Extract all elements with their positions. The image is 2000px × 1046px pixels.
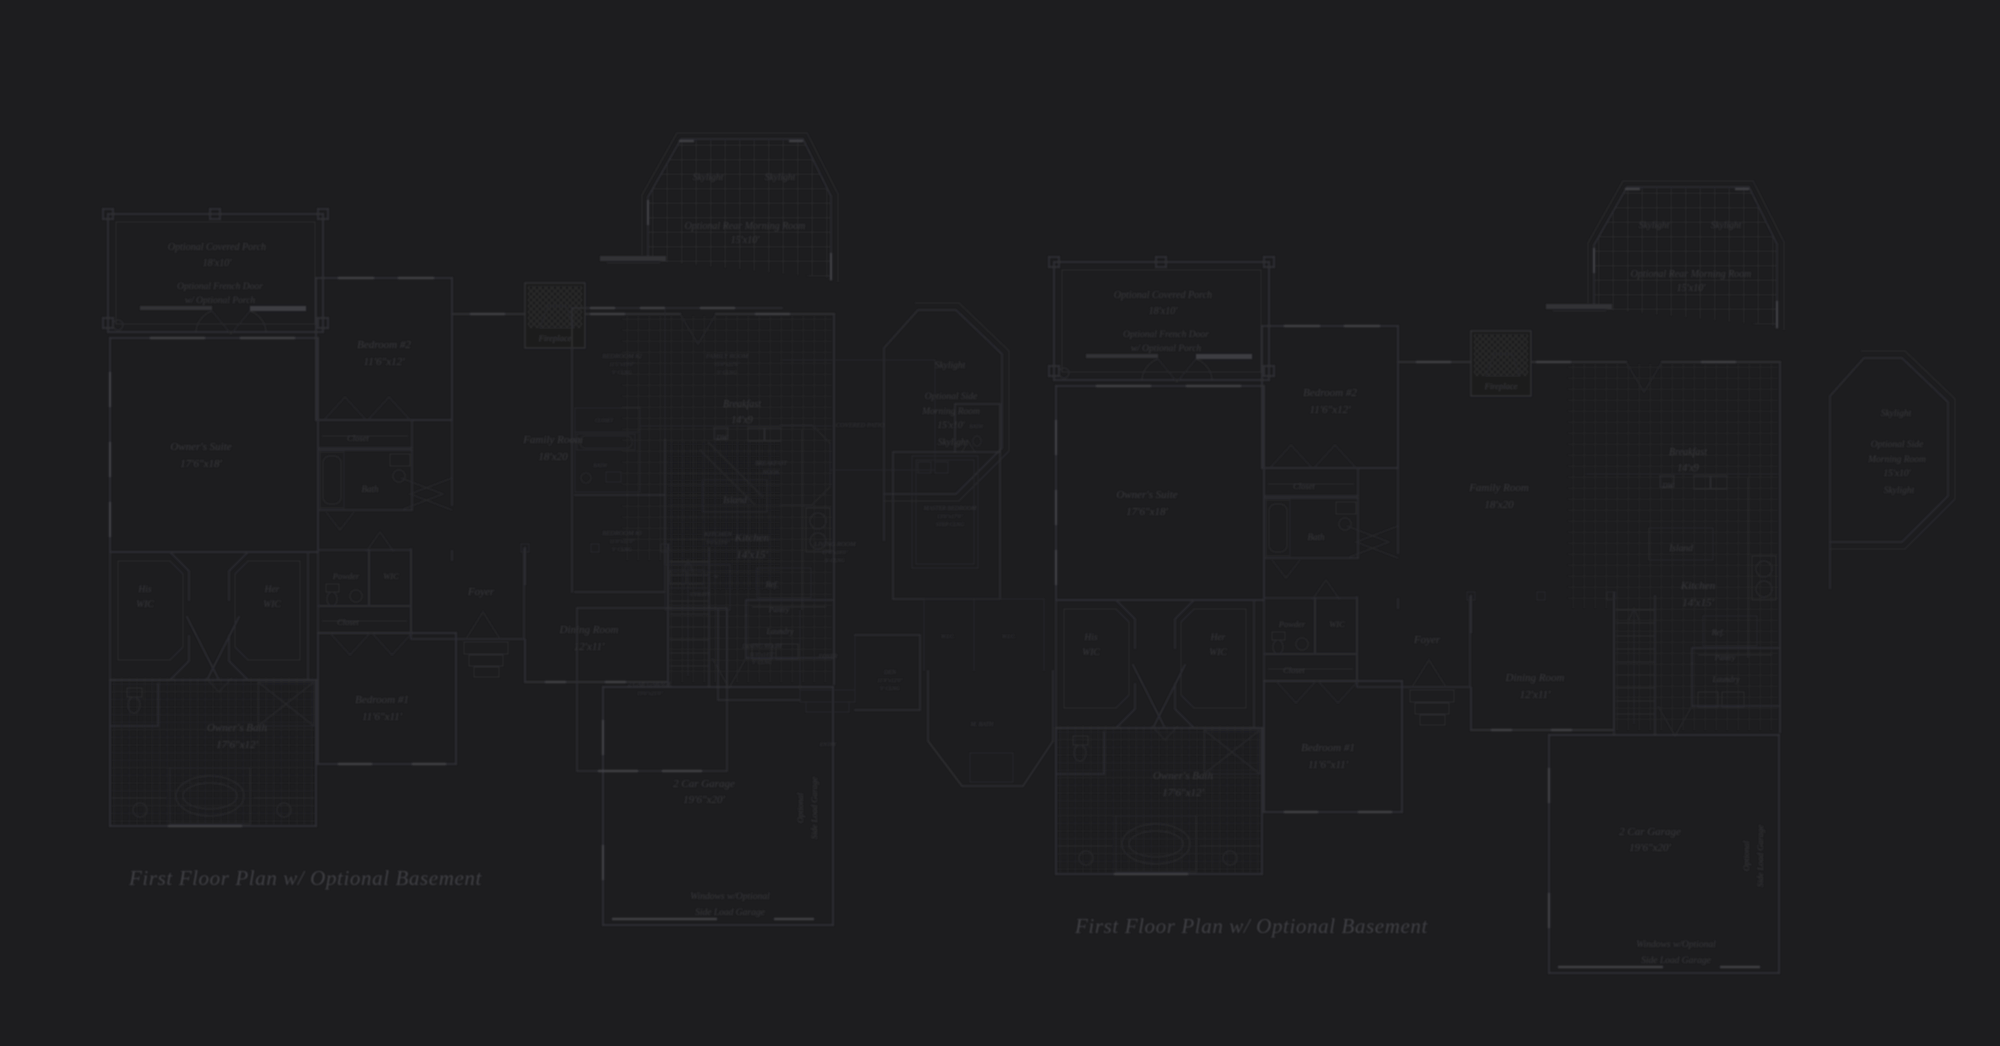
svg-text:11'0"x14'0": 11'0"x14'0": [749, 651, 775, 658]
svg-text:FOYER: FOYER: [818, 654, 838, 660]
svg-text:17'8"x18'0": 17'8"x18'0": [822, 550, 849, 556]
svg-text:UTILITY: UTILITY: [690, 592, 711, 598]
svg-text:2 CAR GARAGE: 2 CAR GARAGE: [628, 681, 672, 688]
svg-text:11'0"x11'0": 11'0"x11'0": [609, 539, 635, 545]
svg-text:W.I.C.: W.I.C.: [941, 634, 955, 640]
svg-text:ENTRY: ENTRY: [819, 742, 837, 748]
svg-text:13'6"x17'0": 13'6"x17'0": [937, 514, 964, 520]
svg-text:BATH: BATH: [969, 424, 984, 430]
svg-text:FAMILY ROOM: FAMILY ROOM: [705, 353, 749, 360]
svg-text:M. BATH: M. BATH: [970, 722, 994, 728]
svg-text:NOOK: NOOK: [762, 470, 781, 476]
svg-text:COVERED PATIO: COVERED PATIO: [836, 422, 885, 429]
svg-text:MASTER BEDROOM: MASTER BEDROOM: [923, 506, 978, 512]
svg-text:BEDROOM #2: BEDROOM #2: [602, 353, 642, 360]
svg-text:STEP CLNG: STEP CLNG: [936, 522, 964, 528]
svg-text:11'4"x12'0": 11'4"x12'0": [877, 677, 903, 684]
svg-text:9' CLNG: 9' CLNG: [880, 686, 900, 692]
svg-text:19'6"x21'0": 19'6"x21'0": [637, 691, 664, 697]
svg-text:BREAKFAST: BREAKFAST: [755, 461, 787, 467]
svg-text:9' CLNG: 9' CLNG: [752, 660, 772, 666]
svg-text:W.I.C.: W.I.C.: [1002, 634, 1016, 640]
svg-text:DINING ROOM: DINING ROOM: [741, 644, 782, 650]
svg-text:LIVING ROOM: LIVING ROOM: [813, 541, 856, 548]
svg-text:BEDROOM #3: BEDROOM #3: [602, 530, 642, 537]
svg-text:9' CLNG: 9' CLNG: [717, 370, 737, 376]
svg-text:9' CLNG: 9' CLNG: [825, 558, 845, 564]
svg-text:CLOSET: CLOSET: [595, 419, 614, 424]
svg-text:9' CLNG: 9' CLNG: [612, 370, 632, 376]
svg-text:KITCHEN: KITCHEN: [703, 531, 732, 538]
svg-text:9'6"x13'6": 9'6"x13'6": [706, 540, 730, 546]
svg-text:DEN: DEN: [883, 670, 897, 676]
svg-text:BATH: BATH: [593, 463, 608, 469]
svg-text:11'5"x13'0": 11'5"x13'0": [609, 362, 635, 368]
svg-text:9' CLNG: 9' CLNG: [612, 547, 632, 553]
svg-text:15'0"x22'0": 15'0"x22'0": [714, 362, 741, 368]
